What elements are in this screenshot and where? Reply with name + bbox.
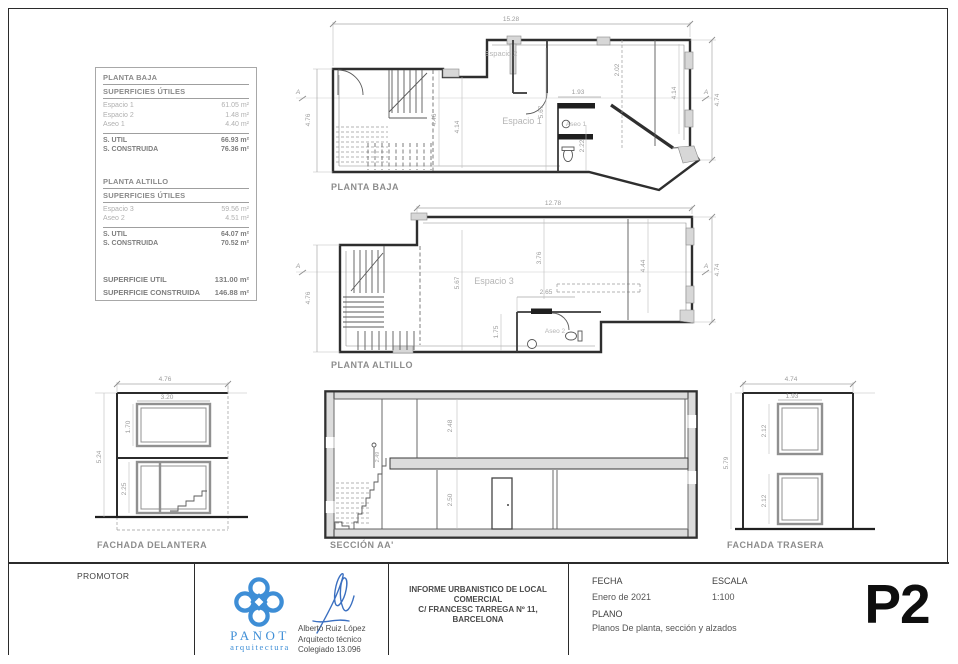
room-label-espacio2: Espacio 2 [485, 49, 518, 58]
section-title: SECCIÓN AA' [330, 539, 394, 550]
storefront [137, 462, 210, 513]
dim-label: 2.02 [614, 63, 621, 76]
divider [103, 133, 249, 134]
interior-steps [170, 491, 207, 511]
diagonal-wall [611, 105, 673, 148]
seccion-aa-drawing: 2.48 2.50 2.49 SECCIÓN AA' [325, 391, 697, 550]
project-info: INFORME URBANISTICO DE LOCAL COMERCIAL C… [388, 585, 568, 625]
elevation-title: FACHADA TRASERA [727, 540, 824, 550]
table-row: Espacio 21.48 m² [103, 111, 249, 121]
dim-label: 1.93 [786, 393, 799, 400]
dimension-lines [313, 205, 716, 352]
logo-subtitle: arquitectura [215, 642, 305, 652]
upper-window [137, 404, 210, 446]
floor-slab [326, 529, 696, 537]
promotor-label: PROMOTOR [77, 571, 129, 581]
dim-label: 5.67 [454, 276, 461, 289]
left-wall [326, 392, 334, 537]
window-hatches [393, 213, 694, 353]
window-hatches [443, 36, 699, 163]
roof-slab [326, 392, 696, 399]
table-row: Espacio 161.05 m² [103, 101, 249, 111]
section-marker-a: A [703, 89, 708, 96]
planta-baja-plan: 15.28 4.74 4.14 2.02 1.93 5.67 4.46 4.14… [295, 16, 721, 192]
table-total-row: S. CONSTRUIDA76.36 m² [103, 145, 249, 155]
dim-label: 4.14 [454, 120, 461, 133]
panot-logo-icon [231, 577, 287, 627]
title-block: PROMOTOR PANOT arquitectura Alberto Ruiz… [9, 562, 949, 655]
section-marker-a: A [295, 263, 300, 270]
espacio2-walls [513, 40, 547, 114]
fachada-delantera-elevation: 4.76 3.20 1.70 5.24 2.25 FACHADA DELANTE… [95, 376, 248, 550]
dim-label: 2.50 [447, 493, 454, 506]
table-section-title: PLANTA BAJA [103, 73, 249, 85]
stair [336, 70, 431, 170]
sink-fixture [528, 340, 537, 349]
toilet-fixture [566, 332, 577, 340]
upper-window [778, 404, 822, 454]
dim-label: 1.70 [125, 420, 132, 433]
dim-label: 12.78 [545, 200, 562, 207]
table-total-row: S. UTIL64.07 m² [103, 230, 249, 240]
dim-label: 2.22 [579, 139, 586, 152]
table-total-row: S. CONSTRUIDA70.52 m² [103, 239, 249, 249]
table-section-title: PLANTA ALTILLO [103, 177, 249, 189]
elevation-title: FACHADA DELANTERA [97, 540, 207, 550]
areas-table: PLANTA BAJA SUPERFICIES ÚTILES Espacio 1… [95, 67, 257, 301]
dim-label: 4.76 [159, 376, 172, 383]
planta-altillo-plan: 12.78 4.74 4.44 3.76 5.67 2.65 1.75 4.76… [295, 200, 721, 370]
fecha-value: Enero de 2021 [592, 592, 651, 602]
dim-label: 4.76 [305, 113, 312, 126]
section-marker-a: A [703, 263, 708, 270]
stair [343, 246, 414, 350]
entry-door-arc [338, 70, 363, 95]
fecha-label: FECHA [592, 576, 623, 586]
architect-license: Colegiado 13.096 [298, 645, 366, 656]
right-wall [688, 392, 696, 537]
table-total-row: S. UTIL66.93 m² [103, 136, 249, 146]
dim-label: 2.12 [761, 424, 768, 437]
dim-label: 1.93 [572, 89, 585, 96]
plano-value: Planos De planta, sección y alzados [592, 623, 742, 634]
section-marker-a: A [295, 89, 300, 96]
dimension-lines [104, 381, 231, 517]
dim-label: 5.79 [723, 456, 730, 469]
plano-label: PLANO [592, 609, 623, 619]
interior-door [492, 478, 512, 529]
table-row: Aseo 14.40 m² [103, 120, 249, 130]
divider [103, 227, 249, 228]
dim-label: 4.74 [714, 263, 721, 276]
sheet-number: P2 [852, 572, 942, 636]
table-subtitle: SUPERFICIES ÚTILES [103, 191, 249, 203]
dim-label: 4.44 [640, 259, 647, 272]
lower-window [778, 474, 822, 524]
dim-label: 3.20 [161, 394, 174, 401]
table-row: Espacio 359.56 m² [103, 205, 249, 215]
table-row: Aseo 24.51 m² [103, 214, 249, 224]
divider [568, 564, 569, 655]
dim-label: 4.14 [671, 86, 678, 99]
dim-label: 2.12 [761, 494, 768, 507]
dim-label: 1.75 [493, 325, 500, 338]
divider [194, 564, 195, 655]
dim-label: 15.28 [503, 16, 520, 23]
aseo1 [558, 103, 595, 172]
escala-label: ESCALA [712, 576, 748, 586]
plan-title: PLANTA BAJA [331, 182, 399, 192]
table-subtitle: SUPERFICIES ÚTILES [103, 87, 249, 99]
dim-label: 3.76 [536, 251, 543, 264]
dim-label: 2.48 [447, 419, 454, 432]
plan-title: PLANTA ALTILLO [331, 360, 413, 370]
dim-label: 2.25 [121, 482, 128, 495]
table-grand-total: SUPERFICIE CONSTRUIDA146.88 m² [103, 286, 249, 299]
fachada-trasera-elevation: 4.74 1.93 2.12 2.12 5.79 FACHADA TRASERA [723, 376, 875, 550]
mezzanine-slab [390, 458, 688, 469]
room-label-espacio3: Espacio 3 [474, 276, 514, 286]
dim-label: 4.74 [714, 93, 721, 106]
escala-value: 1:100 [712, 592, 735, 602]
dim-label: 2.65 [540, 289, 553, 296]
dim-label: 5.24 [96, 450, 103, 463]
room-label-aseo2: Aseo 2 [545, 328, 566, 335]
dim-label: 4.76 [305, 291, 312, 304]
dim-label: 4.74 [785, 376, 798, 383]
architect-role: Arquitecto técnico [298, 635, 366, 646]
dim-label: 4.46 [431, 113, 438, 126]
architect-info: Alberto Ruiz López Arquitecto técnico Co… [298, 624, 366, 656]
dim-label: 2.49 [375, 452, 381, 463]
architect-name: Alberto Ruiz López [298, 624, 366, 635]
room-label-espacio1: Espacio 1 [502, 116, 542, 126]
table-grand-total: SUPERFICIE UTIL131.00 m² [103, 273, 249, 286]
room-label-aseo1: Aseo 1 [566, 121, 587, 128]
drawing-sheet: 15.28 4.74 4.14 2.02 1.93 5.67 4.46 4.14… [0, 0, 958, 664]
